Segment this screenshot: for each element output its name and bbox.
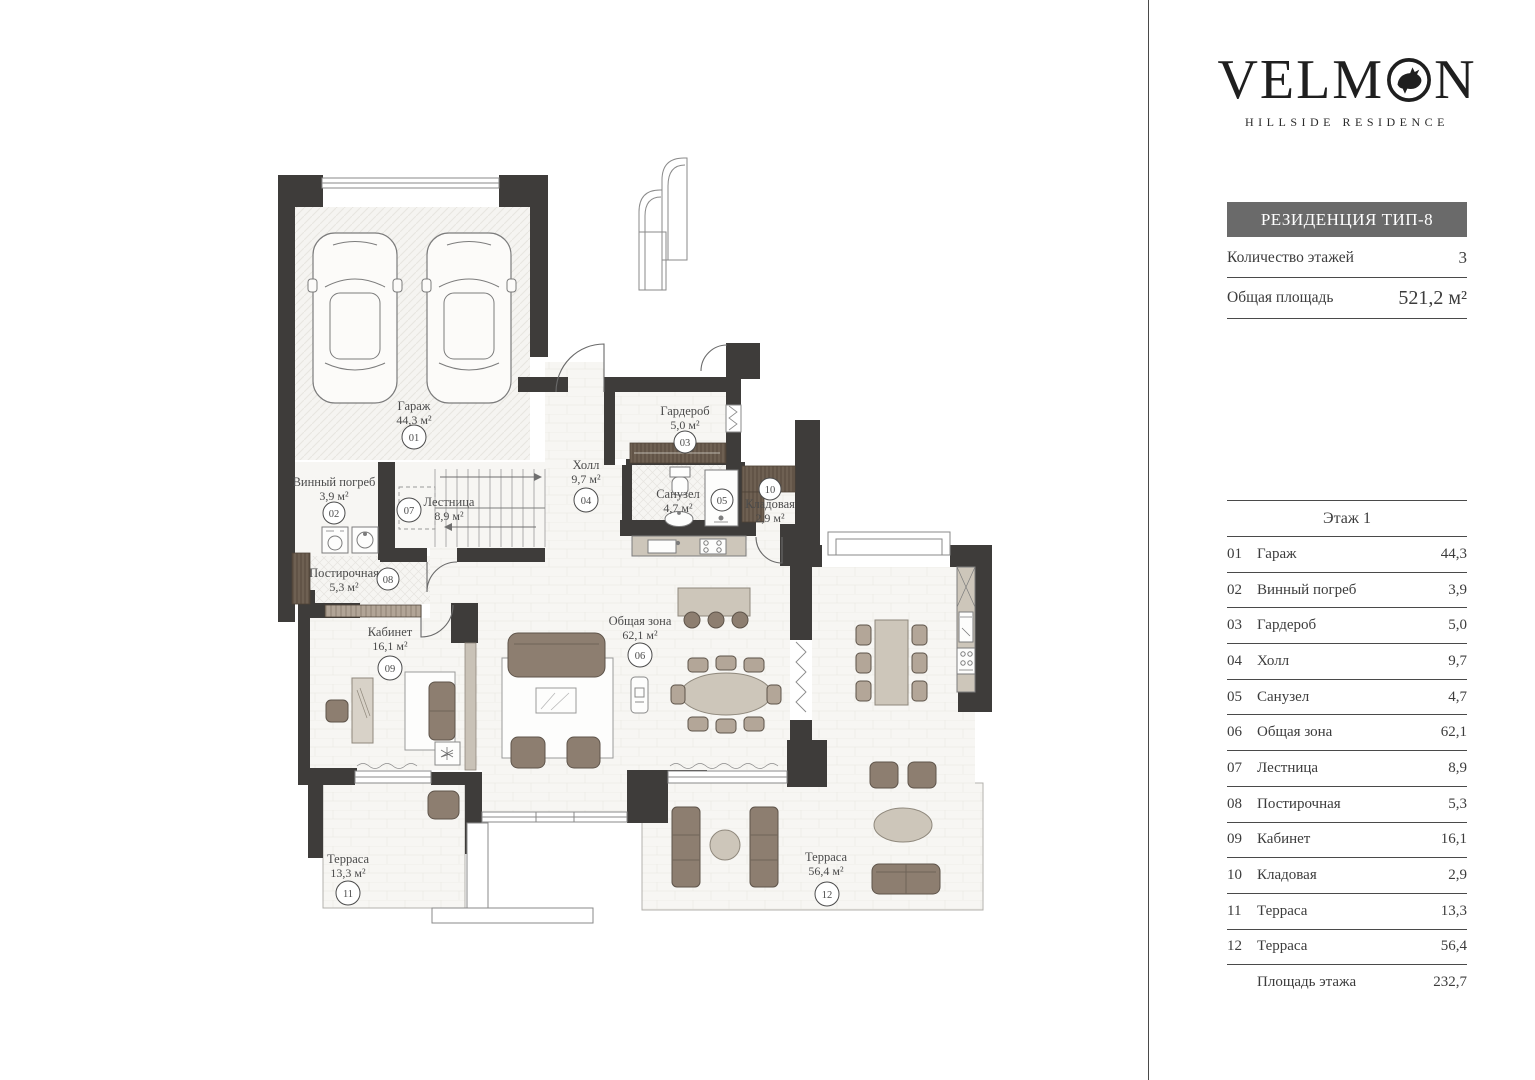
table-row: 08Постирочная5,3 [1227,787,1467,823]
washer-icon [322,527,348,553]
floor-table-title: Этаж 1 [1227,501,1467,537]
svg-text:09: 09 [385,664,396,675]
dining-chair [856,653,871,673]
floors-count-value: 3 [1459,248,1468,268]
brand-logo: VELM N HILLSIDE RESIDENCE [1187,52,1507,130]
terrace-armchair [428,791,459,819]
car-icon [422,233,516,403]
table-row: 07Лестница8,9 [1227,751,1467,787]
dining-chair [912,625,927,645]
svg-text:4,7 м²: 4,7 м² [663,501,693,515]
total-area-label: Общая площадь [1227,289,1333,307]
oval-table [874,808,932,842]
terrace-armchair [870,762,898,788]
svg-text:9,7 м²: 9,7 м² [571,472,601,486]
table-row: 03Гардероб5,0 [1227,608,1467,644]
floor-total-label: Площадь этажа [1257,974,1433,991]
office-chair [326,700,348,722]
dining-chair [688,658,708,672]
room-label: Гараж [398,399,431,413]
floor-rooms-table: Этаж 1 01Гараж44,3 02Винный погреб3,9 03… [1227,500,1467,1000]
room-label: Общая зона [609,614,672,628]
residence-type-banner: РЕЗИДЕНЦИЯ ТИП-8 [1227,202,1467,237]
dining-chair [688,717,708,731]
tv-console [631,677,648,713]
svg-text:11: 11 [343,889,353,900]
coffee-table [536,688,576,713]
floor-plan-page: Гараж 44,3 м² 01 Винный погреб 3,9 м² 02… [0,0,1535,1080]
bar-stool [708,612,724,628]
dining-chair [912,653,927,673]
table-row: 02Винный погреб3,9 [1227,573,1467,609]
svg-text:01: 01 [409,433,420,444]
room-label: Терраса [327,852,369,866]
dining-chair [856,681,871,701]
laundry-floor [310,556,430,604]
dining-chair [912,681,927,701]
terrace-step [432,908,593,923]
svg-text:10: 10 [765,485,776,496]
kitchen-sink-icon [648,540,676,553]
dining-chair [856,625,871,645]
svg-text:02: 02 [329,509,340,520]
table-row: 06Общая зона62,1 [1227,715,1467,751]
svg-text:2,9 м²: 2,9 м² [755,511,785,525]
bar-stool [684,612,700,628]
svg-text:16,1 м²: 16,1 м² [372,639,408,653]
dining-chair [767,685,781,704]
sofa [508,633,605,677]
side-table [710,830,740,860]
dining-chair [744,658,764,672]
floor-total-value: 232,7 [1433,974,1467,991]
desk [352,678,373,743]
dining-chair [744,717,764,731]
page-divider [1148,0,1149,1080]
bar-stool [732,612,748,628]
svg-text:13,3 м²: 13,3 м² [330,866,366,880]
floor-plan-drawing: Гараж 44,3 м² 01 Винный погреб 3,9 м² 02… [0,0,1148,1080]
floor-plan: Гараж 44,3 м² 01 Винный погреб 3,9 м² 02… [0,0,1148,1080]
svg-text:07: 07 [404,506,415,517]
table-row: 09Кабинет16,1 [1227,823,1467,859]
floors-count-label: Количество этажей [1227,249,1354,267]
rooster-logo-icon [1386,57,1432,103]
logo-text-right: N [1434,52,1476,108]
table-row: 11Терраса13,3 [1227,894,1467,930]
toilet-tank [670,467,690,477]
svg-text:04: 04 [581,496,592,507]
armchair [511,737,545,768]
info-panel: VELM N HILLSIDE RESIDENCE РЕЗИДЕНЦИЯ ТИП… [1187,0,1507,1080]
terrace-step [467,823,488,908]
room-label: Гардероб [660,404,709,418]
room-label: Терраса [805,850,847,864]
svg-text:56,4 м²: 56,4 м² [808,864,844,878]
total-area-row: Общая площадь 521,2 м² [1227,278,1467,319]
office-cabinet [325,605,421,617]
floors-count-row: Количество этажей 3 [1227,239,1467,278]
terrace-armchair [908,762,936,788]
room-label: Холл [573,458,600,472]
room-label: Санузел [656,487,700,501]
dining-table [681,673,771,715]
room-label: Кладовая [745,497,795,511]
lounger [750,807,778,887]
total-area-value: 521,2 м² [1398,287,1467,310]
room-label: Кабинет [368,625,413,639]
table-row: 04Холл9,7 [1227,644,1467,680]
room-label: Лестница [424,495,475,509]
table-row: 10Кладовая2,9 [1227,858,1467,894]
sink-icon [352,527,378,553]
svg-text:62,1 м²: 62,1 м² [622,628,658,642]
dining-chair [671,685,685,704]
table-row: 05Санузел4,7 [1227,680,1467,716]
table-total-row: Площадь этажа 232,7 [1227,965,1467,1000]
sliding-partition [465,643,476,770]
svg-text:12: 12 [822,890,833,901]
car-icon [308,233,402,403]
svg-text:03: 03 [680,438,691,449]
logo-text-left: VELM [1217,52,1384,108]
brand-tagline: HILLSIDE RESIDENCE [1187,115,1507,130]
room-label: Винный погреб [293,475,376,489]
svg-text:3,9 м²: 3,9 м² [319,489,349,503]
dining-chair [716,719,736,733]
svg-text:5,0 м²: 5,0 м² [670,418,700,432]
svg-text:08: 08 [383,575,394,586]
lounger [672,807,700,887]
svg-text:5,3 м²: 5,3 м² [329,580,359,594]
svg-text:05: 05 [717,496,728,507]
table-row: 12Терраса56,4 [1227,930,1467,966]
outdoor-dining-table [875,620,908,705]
svg-text:8,9 м²: 8,9 м² [434,509,464,523]
laundry-closet [292,553,310,604]
svg-text:06: 06 [635,651,646,662]
entrance-canopy-outline [639,158,687,290]
armchair [567,737,600,768]
oven-icon [959,612,973,642]
stove-icon [700,539,726,554]
dining-chair [716,656,736,670]
table-row: 01Гараж44,3 [1227,537,1467,573]
room-label: Постирочная [309,566,379,580]
